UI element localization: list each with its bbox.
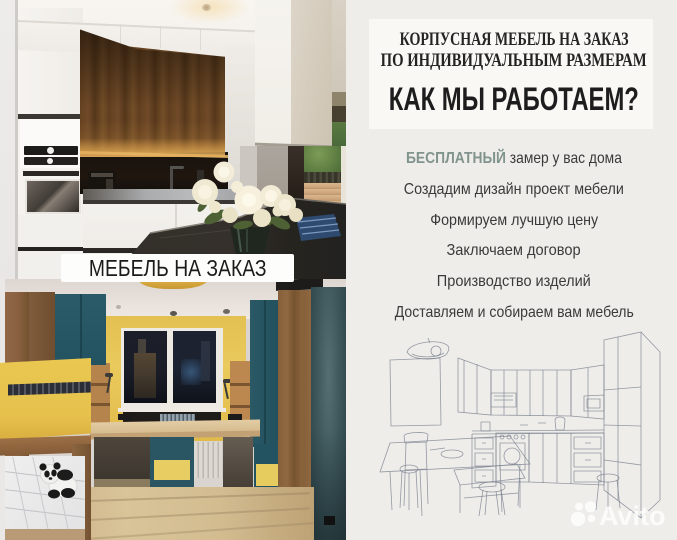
svg-text:Avito: Avito bbox=[599, 501, 666, 531]
